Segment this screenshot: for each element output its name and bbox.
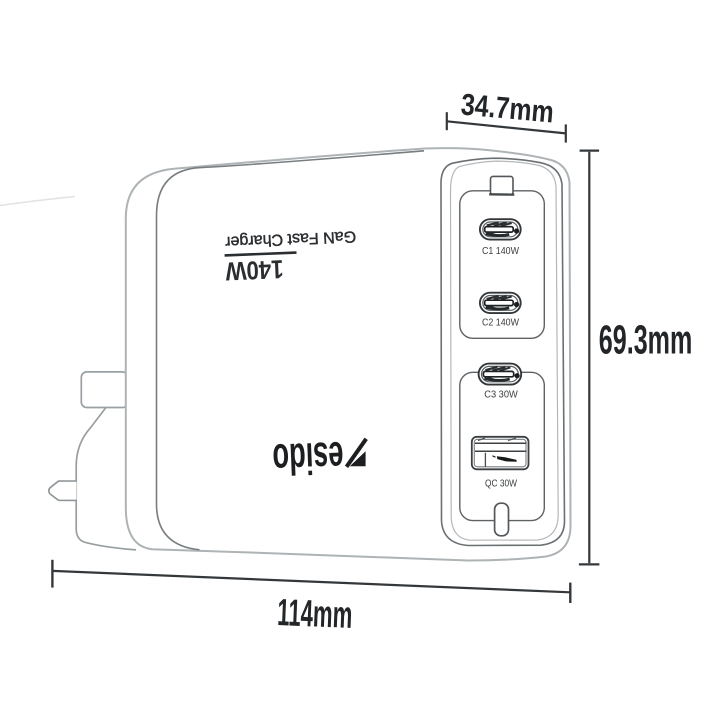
svg-text:114mm: 114mm: [277, 592, 354, 637]
svg-text:esido: esido: [272, 432, 345, 484]
svg-text:C2 140W: C2 140W: [482, 317, 519, 328]
svg-text:140W: 140W: [224, 254, 284, 287]
svg-text:69.3mm: 69.3mm: [599, 316, 693, 362]
svg-text:C1 140W: C1 140W: [482, 246, 519, 257]
svg-text:C3 30W: C3 30W: [484, 389, 518, 400]
svg-text:QC 30W: QC 30W: [485, 478, 517, 489]
